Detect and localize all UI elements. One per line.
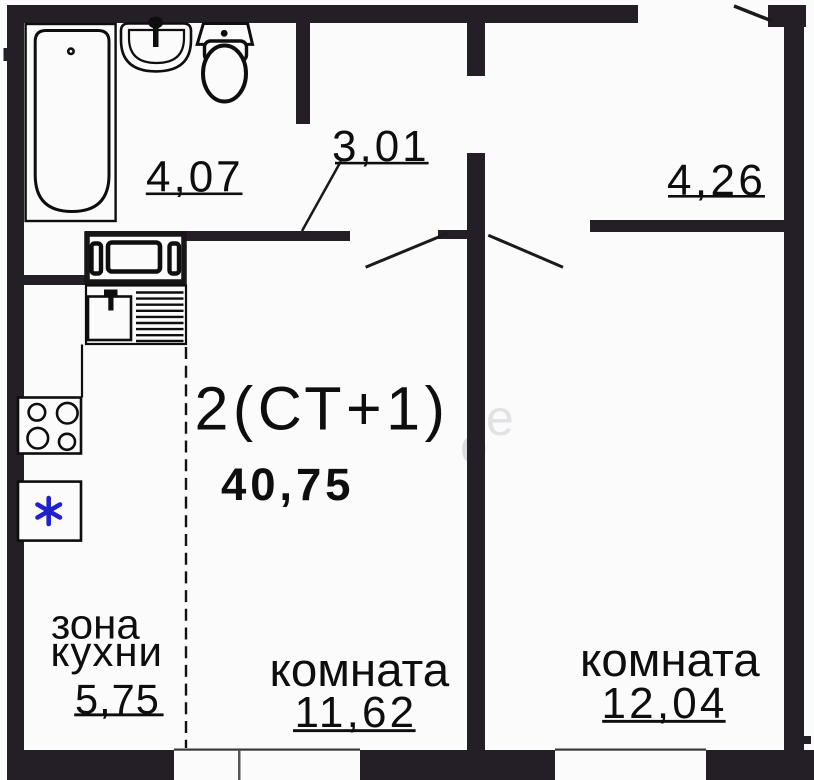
svg-text:40,75: 40,75 xyxy=(221,459,354,510)
svg-text:кухни: кухни xyxy=(51,628,164,675)
svg-text:4,26: 4,26 xyxy=(667,156,766,205)
svg-text:е: е xyxy=(486,390,514,446)
svg-text:2(СТ+1): 2(СТ+1) xyxy=(195,375,450,443)
